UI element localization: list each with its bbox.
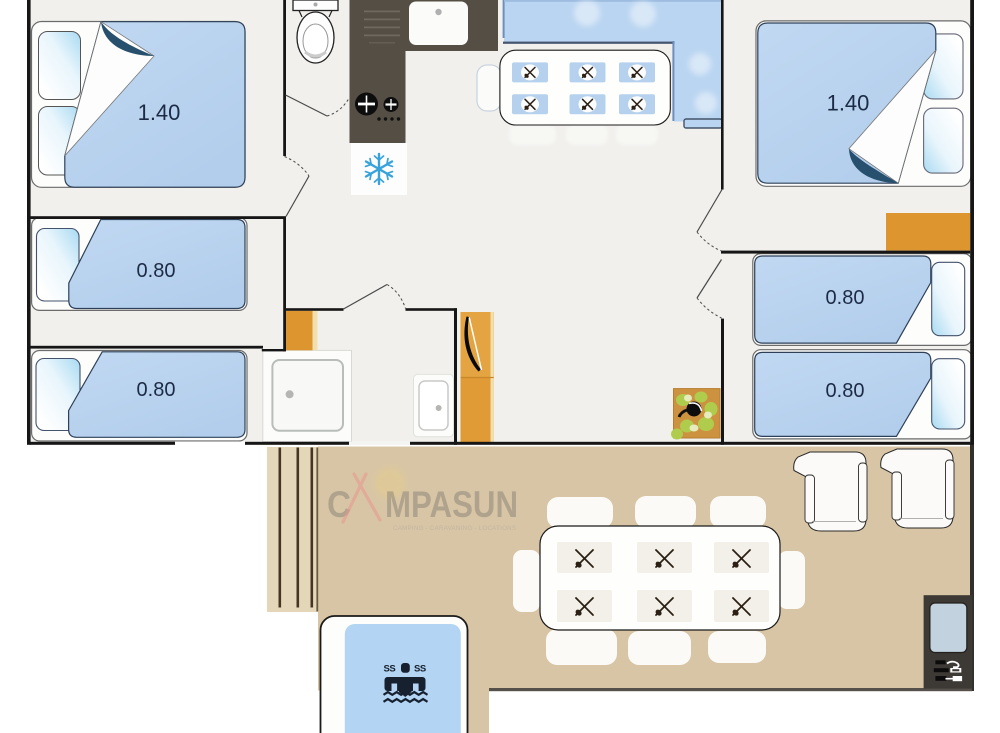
svg-text:MPASUN: MPASUN bbox=[385, 484, 518, 525]
svg-text:0.80: 0.80 bbox=[826, 380, 865, 402]
svg-text:CAMPING - CARAVANING - LOCATIO: CAMPING - CARAVANING - LOCATIONS bbox=[393, 525, 517, 532]
svg-text:SS: SS bbox=[414, 664, 426, 675]
svg-text:C: C bbox=[327, 484, 351, 525]
svg-text:SS: SS bbox=[384, 664, 396, 675]
svg-text:0.80: 0.80 bbox=[826, 287, 865, 309]
svg-text:0.80: 0.80 bbox=[137, 260, 176, 282]
svg-text:1.40: 1.40 bbox=[827, 91, 870, 116]
svg-text:1.40: 1.40 bbox=[138, 100, 181, 125]
svg-text:0.80: 0.80 bbox=[137, 379, 176, 401]
